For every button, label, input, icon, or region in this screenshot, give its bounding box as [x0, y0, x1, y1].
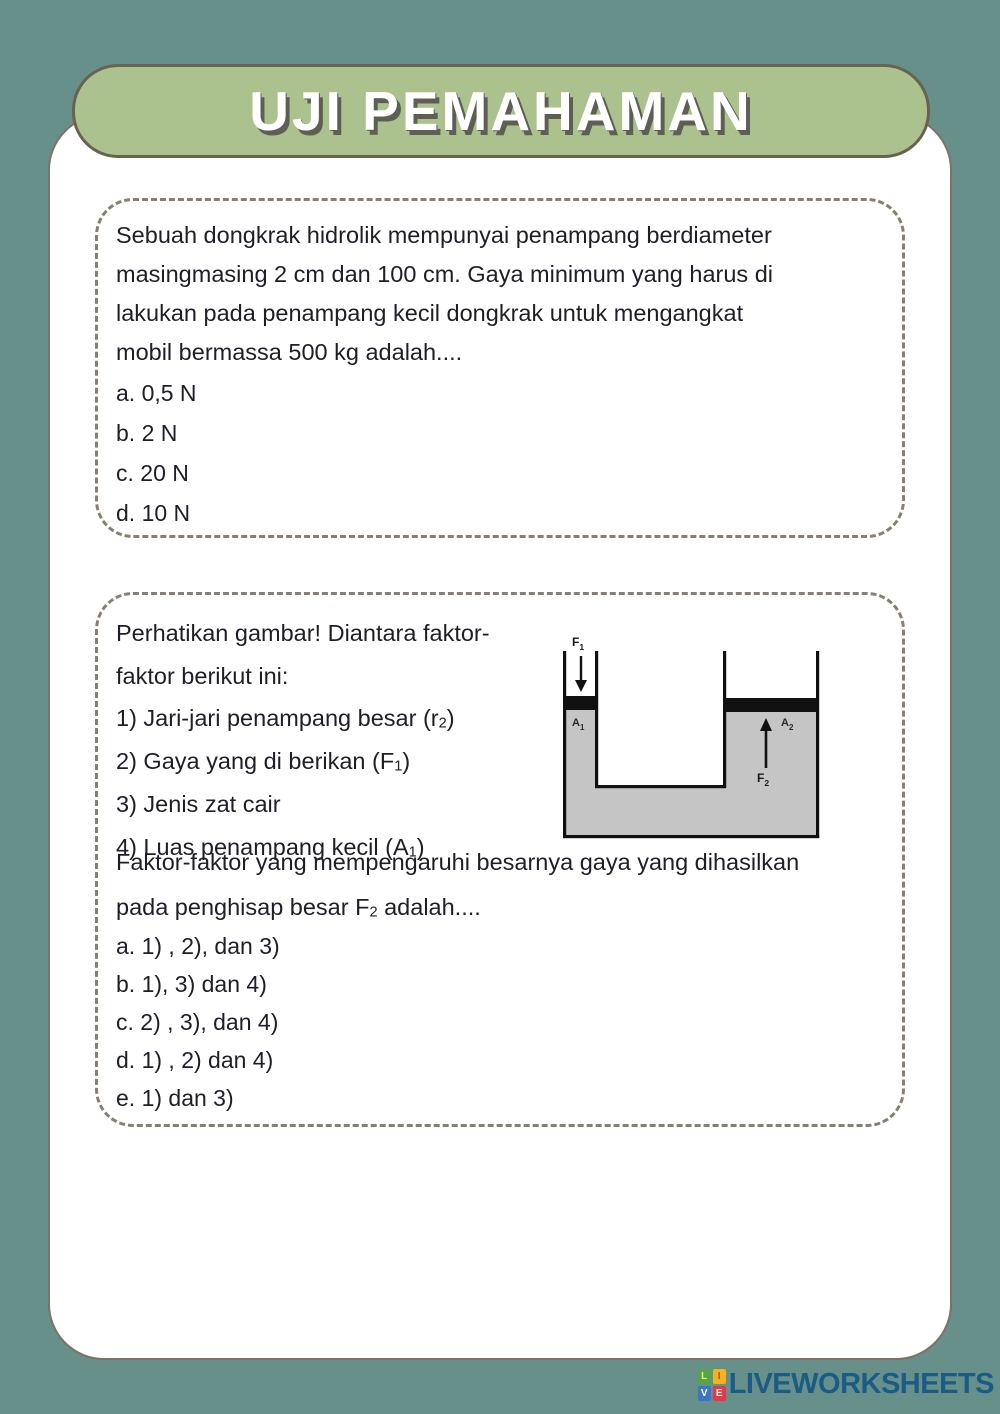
large-piston: [723, 698, 819, 712]
question2-option-e[interactable]: e. 1) dan 3): [116, 1079, 280, 1117]
question2-option-c[interactable]: c. 2) , 3), dan 4): [116, 1003, 280, 1041]
question2-option-d[interactable]: d. 1) , 2) dan 4): [116, 1041, 280, 1079]
question2-intro-line2: faktor berikut ini:: [116, 658, 490, 701]
question1-text-line2: masingmasing 2 cm dan 100 cm. Gaya minim…: [116, 255, 773, 294]
question2-factor-1: 1) Jari-jari penampang besar (r2): [116, 700, 490, 743]
question1-text-line1: Sebuah dongkrak hidrolik mempunyai penam…: [116, 216, 773, 255]
liquid-shape: [566, 710, 816, 835]
brand-name: LIVEWORKSHEETS: [729, 1368, 994, 1401]
question2-intro: Perhatikan gambar! Diantara faktor- fakt…: [116, 615, 490, 871]
question1-option-d[interactable]: d. 10 N: [116, 493, 197, 533]
question1-text-line3: lakukan pada penampang kecil dongkrak un…: [116, 294, 773, 333]
page-title: UJI PEMAHAMAN: [249, 79, 752, 143]
brand-footer: L I V E LIVEWORKSHEETS: [698, 1368, 994, 1401]
question1-text-line4: mobil bermassa 500 kg adalah....: [116, 333, 773, 372]
worksheet-page: UJI PEMAHAMAN Sebuah dongkrak hidrolik m…: [0, 0, 1000, 1414]
logo-square-v: V: [698, 1386, 711, 1401]
channel-top-wall: [595, 785, 726, 788]
header-banner: UJI PEMAHAMAN: [72, 64, 930, 158]
question2-factor-3: 3) Jenis zat cair: [116, 786, 490, 829]
small-piston: [563, 696, 598, 710]
right-inner-wall: [723, 651, 726, 788]
question2-box: Perhatikan gambar! Diantara faktor- fakt…: [95, 592, 905, 1127]
question1-option-a[interactable]: a. 0,5 N: [116, 373, 197, 413]
question2-stem: Faktor-faktor yang mempengaruhi besarnya…: [116, 843, 799, 932]
question1-box: Sebuah dongkrak hidrolik mempunyai penam…: [95, 198, 905, 538]
question2-option-b[interactable]: b. 1), 3) dan 4): [116, 965, 280, 1003]
logo-square-l: L: [698, 1369, 711, 1384]
f1-label: F1: [572, 635, 584, 652]
left-inner-wall: [595, 651, 598, 788]
right-outer-wall: [816, 651, 819, 838]
logo-square-i: I: [713, 1369, 726, 1384]
f1-arrow-head: [575, 680, 587, 692]
question2-intro-line1: Perhatikan gambar! Diantara faktor-: [116, 615, 490, 658]
logo-square-e: E: [713, 1386, 726, 1401]
question2-stem-line2: pada penghisap besar F2 adalah....: [116, 888, 799, 933]
left-outer-wall: [563, 651, 566, 838]
question2-stem-line1: Faktor-faktor yang mempengaruhi besarnya…: [116, 843, 799, 888]
question2-factor-2: 2) Gaya yang di berikan (F1): [116, 743, 490, 786]
liveworksheets-logo-icon: L I V E: [698, 1369, 726, 1401]
question1-option-c[interactable]: c. 20 N: [116, 453, 197, 493]
container-bottom-wall: [563, 835, 819, 838]
question2-option-a[interactable]: a. 1) , 2), dan 3): [116, 927, 280, 965]
hydraulic-press-diagram: F1 A1 A2 F2: [559, 630, 839, 844]
question2-options: a. 1) , 2), dan 3) b. 1), 3) dan 4) c. 2…: [116, 927, 280, 1117]
question1-option-b[interactable]: b. 2 N: [116, 413, 197, 453]
question1-options: a. 0,5 N b. 2 N c. 20 N d. 10 N: [116, 373, 197, 533]
question1-text: Sebuah dongkrak hidrolik mempunyai penam…: [116, 216, 773, 372]
